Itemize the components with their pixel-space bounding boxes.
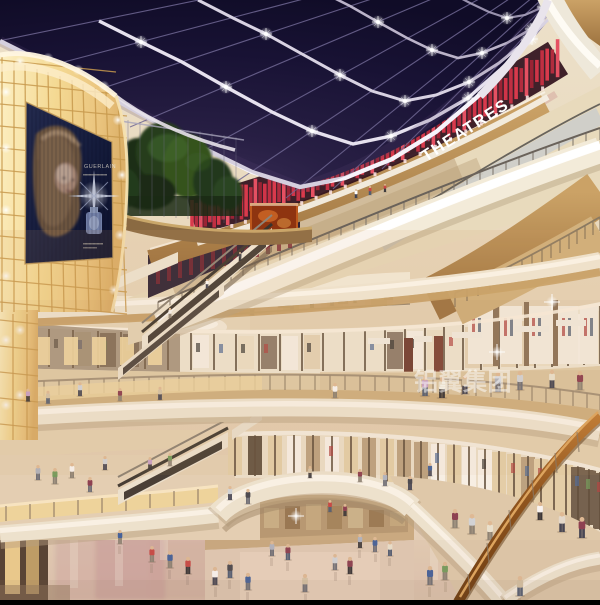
svg-text:铝翼集团: 铝翼集团 xyxy=(414,368,512,396)
